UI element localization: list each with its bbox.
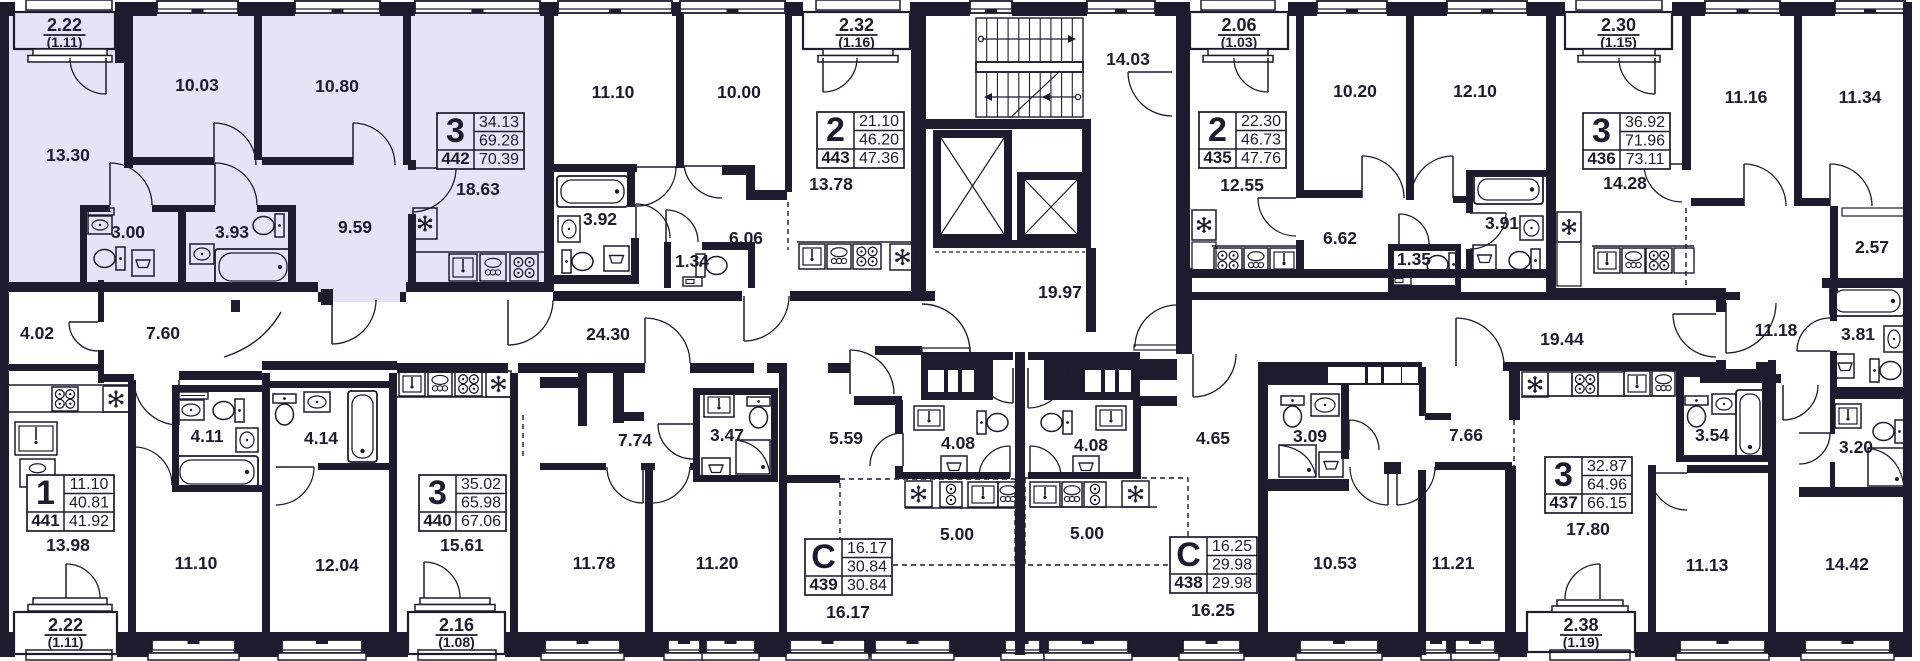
svg-text:12.04: 12.04 <box>315 555 359 575</box>
svg-text:35.02: 35.02 <box>461 476 501 493</box>
svg-text:3.09: 3.09 <box>1293 426 1327 446</box>
svg-text:5.00: 5.00 <box>1070 523 1104 543</box>
svg-text:18.63: 18.63 <box>456 179 500 199</box>
svg-text:70.39: 70.39 <box>479 151 519 168</box>
svg-text:14.42: 14.42 <box>1825 554 1869 574</box>
svg-text:30.84: 30.84 <box>847 577 887 594</box>
svg-text:30.84: 30.84 <box>847 558 887 575</box>
svg-text:13.78: 13.78 <box>809 174 853 194</box>
svg-text:11.18: 11.18 <box>1755 320 1798 340</box>
svg-text:2: 2 <box>826 111 845 149</box>
svg-text:2.22: 2.22 <box>48 615 83 635</box>
svg-text:3.47: 3.47 <box>710 425 744 445</box>
svg-text:3: 3 <box>1592 112 1611 150</box>
svg-text:16.17: 16.17 <box>847 540 887 557</box>
svg-text:19.44: 19.44 <box>1540 329 1584 349</box>
svg-text:11.10: 11.10 <box>70 476 109 493</box>
svg-text:16.25: 16.25 <box>1191 600 1235 620</box>
svg-text:65.98: 65.98 <box>461 494 501 511</box>
svg-text:3.00: 3.00 <box>111 222 145 242</box>
svg-text:3: 3 <box>428 474 447 512</box>
svg-text:13.30: 13.30 <box>46 145 90 165</box>
svg-text:(1.03): (1.03) <box>1221 34 1258 50</box>
svg-text:14.03: 14.03 <box>1106 49 1150 69</box>
svg-text:4.65: 4.65 <box>1196 428 1230 448</box>
svg-text:16.17: 16.17 <box>826 602 870 622</box>
svg-text:6.62: 6.62 <box>1323 228 1357 248</box>
svg-text:2: 2 <box>1208 111 1227 149</box>
svg-text:13.98: 13.98 <box>46 535 90 555</box>
svg-text:11.10: 11.10 <box>592 82 635 102</box>
svg-text:2.30: 2.30 <box>1601 15 1636 35</box>
svg-text:29.98: 29.98 <box>1212 556 1252 573</box>
svg-text:11.78: 11.78 <box>573 553 616 573</box>
svg-text:14.28: 14.28 <box>1603 173 1647 193</box>
svg-text:1.35: 1.35 <box>1397 249 1431 269</box>
svg-text:441: 441 <box>31 511 59 530</box>
svg-text:1: 1 <box>36 474 55 512</box>
svg-text:15.61: 15.61 <box>440 535 484 555</box>
svg-text:71.96: 71.96 <box>1625 132 1665 149</box>
svg-text:47.36: 47.36 <box>859 150 899 167</box>
svg-text:3.20: 3.20 <box>1839 437 1873 457</box>
svg-text:5.59: 5.59 <box>829 428 863 448</box>
svg-text:7.74: 7.74 <box>618 430 652 450</box>
svg-text:(1.15): (1.15) <box>1600 34 1637 50</box>
svg-text:46.73: 46.73 <box>1241 131 1281 148</box>
svg-text:3.54: 3.54 <box>1695 425 1729 445</box>
svg-text:3: 3 <box>1554 456 1573 494</box>
svg-text:12.10: 12.10 <box>1453 81 1497 101</box>
svg-text:3.92: 3.92 <box>583 209 617 229</box>
svg-text:4.08: 4.08 <box>1074 435 1108 455</box>
svg-text:21.10: 21.10 <box>859 113 899 130</box>
svg-text:11.21: 11.21 <box>1432 553 1475 573</box>
svg-text:3: 3 <box>446 112 465 150</box>
svg-text:19.97: 19.97 <box>1038 282 1082 302</box>
svg-text:435: 435 <box>1203 148 1231 167</box>
svg-text:6.06: 6.06 <box>729 228 763 248</box>
svg-text:10.80: 10.80 <box>315 76 359 96</box>
svg-text:32.87: 32.87 <box>1587 458 1627 475</box>
svg-text:2.32: 2.32 <box>839 15 874 35</box>
svg-text:2.16: 2.16 <box>439 615 474 635</box>
svg-text:34.13: 34.13 <box>479 114 519 131</box>
svg-text:443: 443 <box>821 148 849 167</box>
svg-text:4.08: 4.08 <box>941 433 975 453</box>
svg-text:66.15: 66.15 <box>1587 495 1627 512</box>
svg-text:(1.19): (1.19) <box>1563 634 1600 650</box>
svg-text:437: 437 <box>1549 493 1577 512</box>
svg-text:7.60: 7.60 <box>146 323 180 343</box>
svg-text:3.93: 3.93 <box>215 222 249 242</box>
svg-text:10.20: 10.20 <box>1333 81 1377 101</box>
svg-text:41.92: 41.92 <box>69 513 109 530</box>
svg-text:10.03: 10.03 <box>175 75 219 95</box>
svg-text:12.55: 12.55 <box>1220 175 1264 195</box>
svg-text:11.20: 11.20 <box>696 553 739 573</box>
svg-text:16.25: 16.25 <box>1212 538 1252 555</box>
svg-text:69.28: 69.28 <box>479 132 519 149</box>
svg-text:11.34: 11.34 <box>1839 87 1882 107</box>
svg-text:10.00: 10.00 <box>717 82 761 102</box>
svg-text:2.38: 2.38 <box>1563 615 1598 635</box>
svg-text:24.30: 24.30 <box>586 324 630 344</box>
svg-text:64.96: 64.96 <box>1587 476 1627 493</box>
svg-text:3.91: 3.91 <box>1485 213 1519 233</box>
svg-text:73.11: 73.11 <box>1626 151 1665 168</box>
svg-text:47.76: 47.76 <box>1241 150 1281 167</box>
svg-text:40.81: 40.81 <box>69 494 109 511</box>
svg-text:2.57: 2.57 <box>1855 237 1889 257</box>
svg-text:4.02: 4.02 <box>20 323 54 343</box>
svg-text:439: 439 <box>809 575 837 594</box>
svg-text:36.92: 36.92 <box>1625 114 1665 131</box>
svg-text:(1.08): (1.08) <box>438 634 475 650</box>
svg-text:436: 436 <box>1587 149 1615 168</box>
svg-text:10.53: 10.53 <box>1313 553 1357 573</box>
svg-text:11.16: 11.16 <box>1725 87 1768 107</box>
svg-text:(1.16): (1.16) <box>838 34 875 50</box>
svg-text:438: 438 <box>1174 573 1202 592</box>
svg-text:4.14: 4.14 <box>304 428 338 448</box>
svg-text:2.06: 2.06 <box>1221 15 1256 35</box>
svg-text:C: C <box>1176 536 1201 574</box>
svg-text:442: 442 <box>441 149 469 168</box>
svg-text:29.98: 29.98 <box>1212 575 1252 592</box>
svg-text:67.06: 67.06 <box>461 513 501 530</box>
svg-text:7.66: 7.66 <box>1449 425 1483 445</box>
svg-text:9.59: 9.59 <box>338 217 372 237</box>
svg-text:22.30: 22.30 <box>1241 113 1281 130</box>
svg-text:5.00: 5.00 <box>940 524 974 544</box>
svg-text:C: C <box>811 538 836 576</box>
svg-text:11.10: 11.10 <box>175 553 218 573</box>
svg-text:1.34: 1.34 <box>675 251 709 271</box>
svg-text:4.11: 4.11 <box>190 426 223 446</box>
svg-text:17.80: 17.80 <box>1566 519 1610 539</box>
svg-text:11.13: 11.13 <box>1686 555 1729 575</box>
svg-text:440: 440 <box>423 511 451 530</box>
svg-text:3.81: 3.81 <box>1841 324 1875 344</box>
svg-text:(1.11): (1.11) <box>48 634 84 650</box>
svg-text:(1.11): (1.11) <box>47 34 83 50</box>
svg-text:46.20: 46.20 <box>859 131 899 148</box>
svg-text:2.22: 2.22 <box>47 15 82 35</box>
